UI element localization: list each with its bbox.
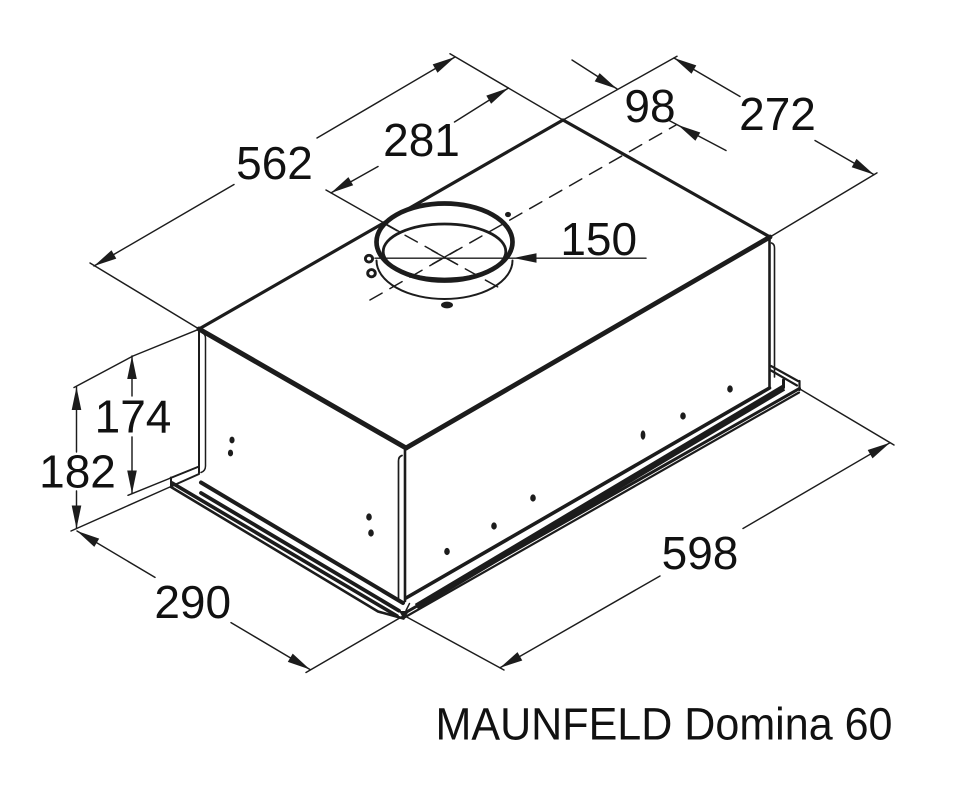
svg-text:182: 182 (39, 446, 116, 498)
svg-text:272: 272 (739, 88, 816, 140)
svg-text:98: 98 (624, 80, 675, 132)
svg-text:MAUNFELD Domina 60: MAUNFELD Domina 60 (436, 699, 893, 750)
svg-text:281: 281 (383, 114, 460, 166)
svg-text:174: 174 (95, 391, 172, 443)
svg-text:562: 562 (236, 137, 313, 189)
svg-text:598: 598 (662, 527, 739, 579)
svg-text:150: 150 (560, 213, 637, 265)
svg-text:290: 290 (154, 576, 231, 628)
